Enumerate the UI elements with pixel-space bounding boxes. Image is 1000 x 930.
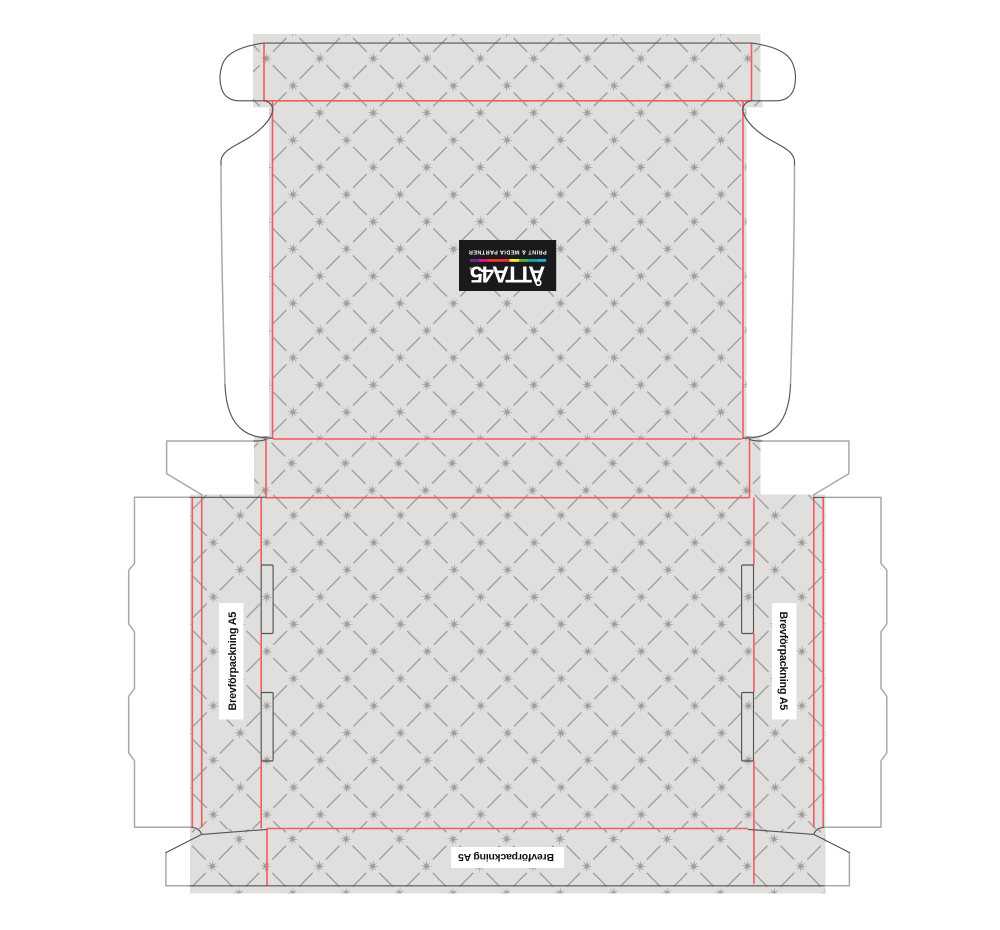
svg-text:ATTA45: ATTA45 (470, 261, 545, 287)
svg-text:Brevförpackning A5: Brevförpackning A5 (227, 612, 239, 711)
svg-text:Brevförpackning A5: Brevförpackning A5 (777, 612, 789, 711)
svg-text:®: ® (469, 266, 472, 270)
svg-text:Brevförpackning A5: Brevförpackning A5 (458, 851, 554, 863)
svg-text:PRINT & MEDIA PARTNER: PRINT & MEDIA PARTNER (468, 248, 546, 254)
